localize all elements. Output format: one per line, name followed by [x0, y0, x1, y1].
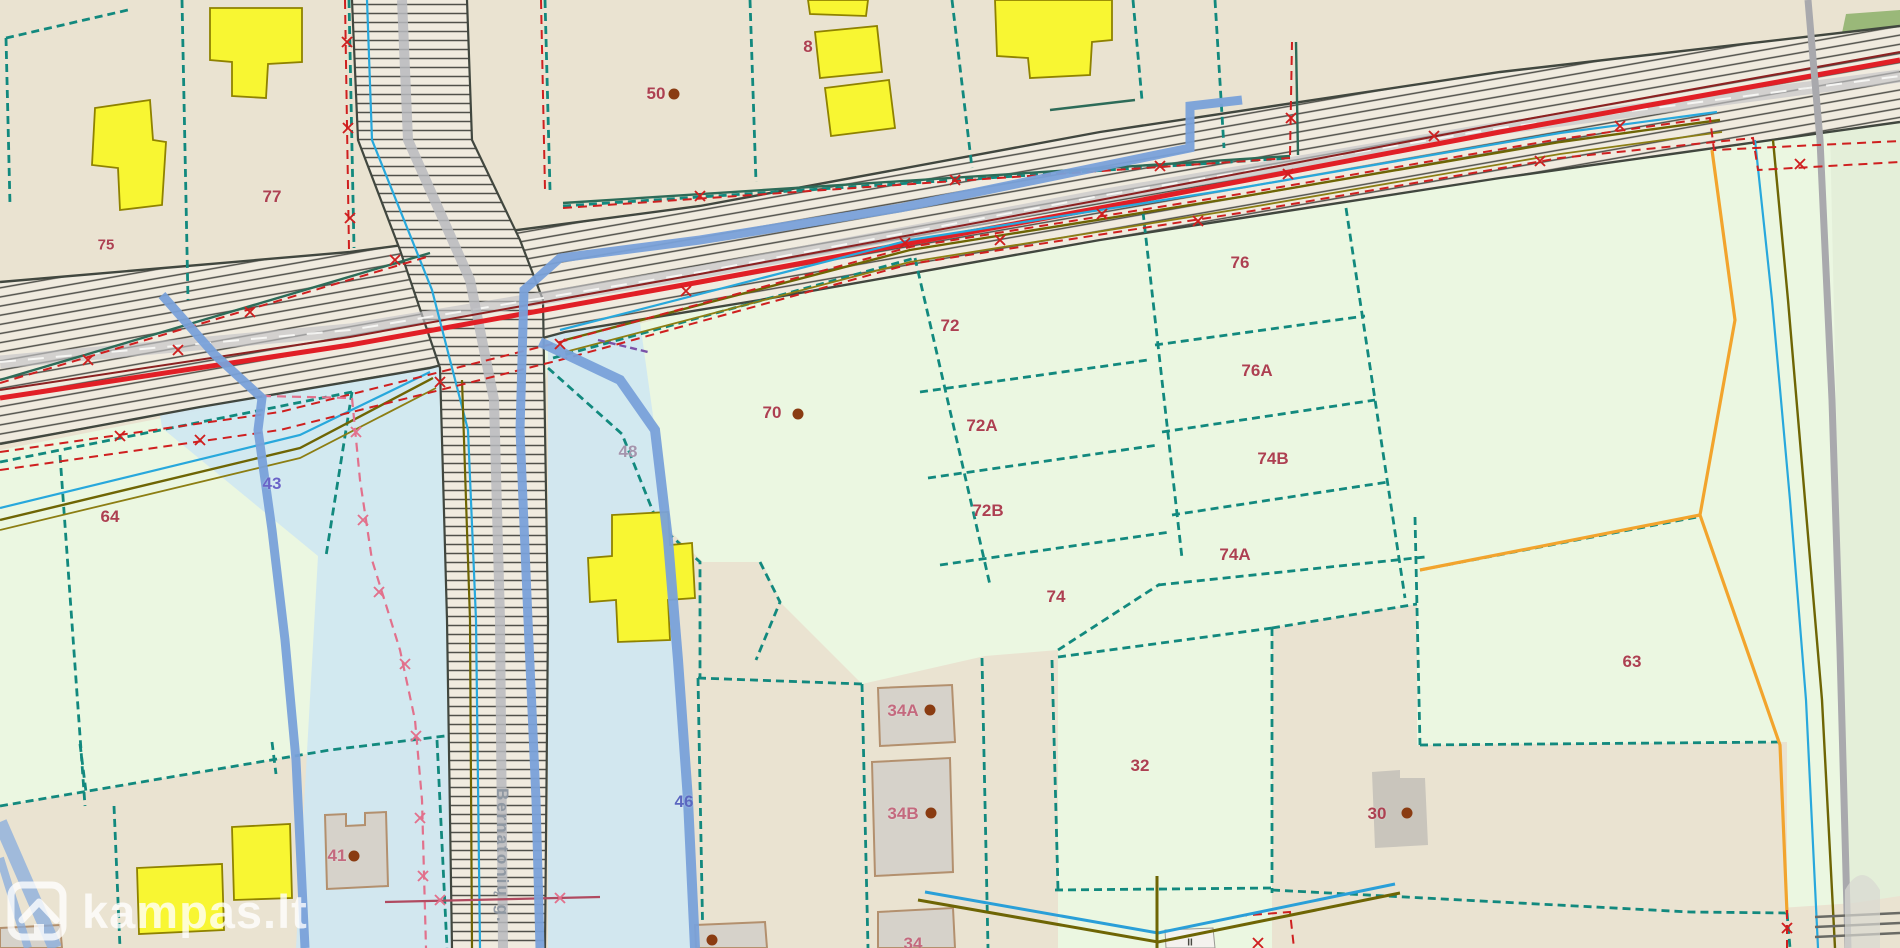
building-30	[1372, 770, 1428, 848]
building	[825, 80, 895, 136]
map-canvas	[0, 0, 1900, 948]
building-34B	[872, 758, 953, 876]
building	[137, 864, 224, 934]
building	[808, 0, 868, 16]
building	[232, 824, 292, 900]
building-34A	[878, 685, 955, 746]
building	[695, 922, 767, 948]
street-name-label: Bernatonių g.	[492, 788, 512, 924]
building	[815, 26, 882, 78]
building-34	[878, 908, 955, 948]
building-silhouette	[1845, 875, 1880, 948]
cadastral-map-viewport[interactable]: 777550864707272A72B7474A74B7676A63323041…	[0, 0, 1900, 948]
